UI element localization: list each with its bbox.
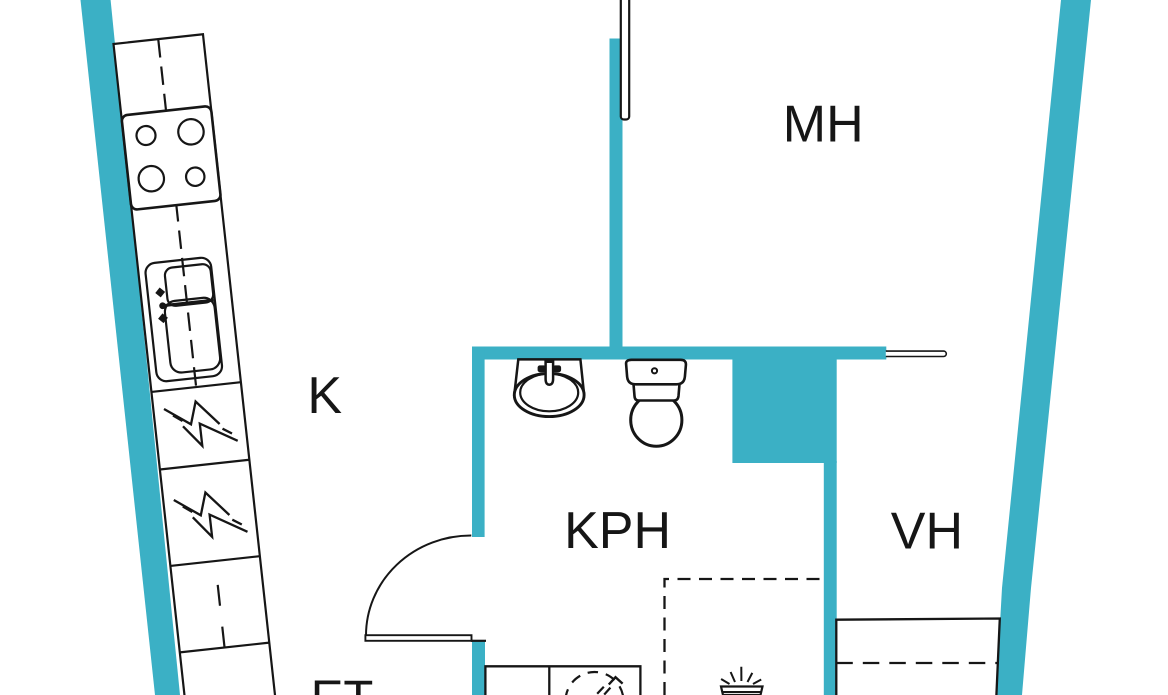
svg-text:K: K (307, 367, 342, 425)
svg-text:MH: MH (783, 95, 864, 153)
svg-text:ET: ET (311, 672, 374, 695)
svg-text:VH: VH (891, 502, 963, 560)
svg-text:KPH: KPH (564, 502, 671, 560)
